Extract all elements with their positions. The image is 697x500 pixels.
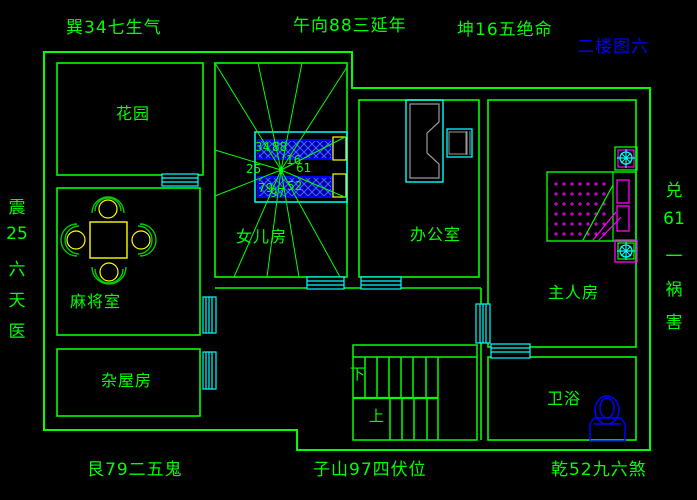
- label-top-center: 午向88三延年: [293, 17, 407, 37]
- label-right-vertical: 兑61一祸害: [661, 176, 687, 341]
- room-office: [359, 100, 479, 277]
- room-label-bath: 卫浴: [547, 390, 581, 408]
- compass-number-se: 34: [255, 141, 270, 153]
- room-label-mahjong: 麻将室: [70, 293, 121, 311]
- label-bottom-left: 艮79二五鬼: [87, 461, 183, 481]
- double-bed-icon: [547, 172, 636, 241]
- window-daughter: [307, 277, 344, 289]
- room-label-garden: 花园: [116, 105, 150, 123]
- label-bottom-right: 乾52九六煞: [551, 461, 647, 481]
- ceiling-light-crosshair-icon: [615, 240, 637, 262]
- stairs-down-label: 下: [350, 366, 365, 383]
- pillow: [333, 174, 346, 197]
- floor-plan-canvas[interactable]: 巽34七生气 午向88三延年 坤16五绝命 二楼图六 艮79二五鬼 子山97四伏…: [0, 0, 697, 500]
- compass-number-e: 25: [246, 163, 261, 175]
- ceiling-light-crosshair-icon: [615, 147, 637, 170]
- label-bottom-center: 子山97四伏位: [313, 461, 427, 481]
- compass-number-s: 88: [272, 141, 287, 153]
- room-label-master: 主人房: [548, 284, 599, 302]
- window-office: [361, 277, 401, 289]
- window-garden: [162, 174, 198, 186]
- compass-number-n: 97: [270, 187, 285, 199]
- room-label-office: 办公室: [410, 226, 461, 244]
- compass-number-w: 61: [296, 162, 311, 174]
- pillow: [333, 137, 346, 160]
- stairs-up-label: 上: [369, 408, 384, 425]
- desk-with-chair-icon: [406, 100, 472, 182]
- window-storage: [203, 352, 216, 389]
- floor-title: 二楼图六: [577, 38, 649, 58]
- room-label-daughter: 女儿房: [236, 228, 287, 246]
- label-top-left: 巽34七生气: [66, 19, 162, 39]
- pillow: [617, 180, 629, 203]
- label-top-right: 坤16五绝命: [457, 21, 553, 41]
- compass-center: [279, 168, 283, 172]
- window-mahjong: [203, 297, 216, 333]
- mahjong-table-with-4-chairs-icon: [61, 197, 156, 284]
- floor-plan-drawing: [0, 0, 697, 500]
- toilet-icon: [590, 396, 625, 441]
- room-mahjong: [57, 188, 200, 335]
- room-label-storage: 杂屋房: [101, 372, 152, 390]
- window-hall-master: [476, 304, 490, 343]
- staircase: [353, 345, 477, 440]
- window-master-bath: [491, 344, 530, 358]
- compass-number-nw: 52: [287, 180, 302, 192]
- label-left-vertical: 震25六天医: [4, 193, 30, 348]
